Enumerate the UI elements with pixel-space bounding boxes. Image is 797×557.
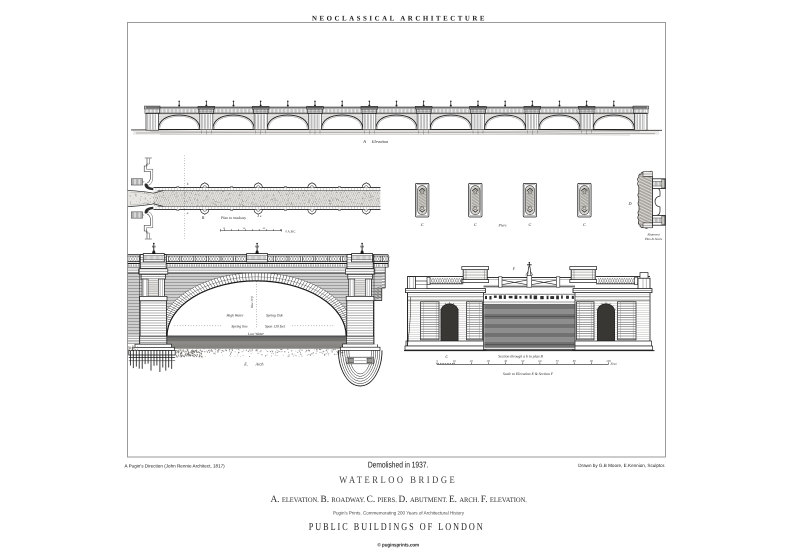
svg-text:F: F <box>512 266 516 271</box>
svg-text:C: C <box>421 222 424 227</box>
svg-text:C: C <box>474 222 477 227</box>
svg-text:Spring line: Spring line <box>231 324 248 328</box>
svg-text:Plan & Stairs: Plan & Stairs <box>644 237 663 241</box>
svg-text:Scale to Elevation E & Section: Scale to Elevation E & Section F <box>503 372 554 376</box>
svg-text:Section through a b in plan B: Section through a b in plan B <box>498 355 543 359</box>
svg-text:90: 90 <box>590 359 594 363</box>
svg-text:40: 40 <box>504 359 508 363</box>
svg-text:© puginsprints.com: © puginsprints.com <box>378 542 420 548</box>
svg-text:Rise 30 ft: Rise 30 ft <box>250 296 254 309</box>
svg-text:E.: E. <box>243 361 248 366</box>
svg-text:Plan to roadway: Plan to roadway <box>220 216 246 220</box>
svg-text:NEOCLASSICAL ARCHITECTURE: NEOCLASSICAL ARCHITECTURE <box>312 14 487 22</box>
svg-text:A Pugin's Direction (John Renn: A Pugin's Direction (John Rennie Archite… <box>125 463 226 468</box>
svg-text:PUBLIC BUILDINGS OF LONDON: PUBLIC BUILDINGS OF LONDON <box>309 522 485 533</box>
svg-text:Drawn by G.B Moore, E.Kennion,: Drawn by G.B Moore, E.Kennion, Sculptor. <box>578 463 665 468</box>
svg-text:30: 30 <box>487 359 491 363</box>
svg-text:Arch: Arch <box>255 361 264 366</box>
svg-text:C: C <box>529 222 532 227</box>
svg-text:Pugin's Prints. Commemorating: Pugin's Prints. Commemorating 200 Years … <box>333 511 465 516</box>
svg-text:Feet: Feet <box>609 362 617 366</box>
svg-text:50: 50 <box>521 359 525 363</box>
svg-text:A: A <box>362 139 366 144</box>
svg-text:80: 80 <box>573 359 577 363</box>
svg-text:60: 60 <box>538 359 542 363</box>
svg-text:C: C <box>583 222 586 227</box>
svg-text:Demolished in 1937.: Demolished in 1937. <box>368 460 429 470</box>
svg-text:◊ A.B.C: ◊ A.B.C <box>285 229 295 233</box>
svg-text:b a: b a <box>258 214 262 218</box>
svg-text:High Water: High Water <box>226 313 245 317</box>
svg-text:B: B <box>202 215 205 220</box>
svg-text:10: 10 <box>453 359 457 363</box>
svg-text:Span 120 feet: Span 120 feet <box>265 324 286 328</box>
svg-text:WATERLOO BRIDGE: WATERLOO BRIDGE <box>339 475 457 486</box>
svg-text:C: C <box>445 354 448 359</box>
svg-text:20: 20 <box>470 359 474 363</box>
svg-text:Spring Tide: Spring Tide <box>266 313 283 317</box>
svg-text:70: 70 <box>556 359 560 363</box>
svg-text:Piers: Piers <box>497 224 507 228</box>
svg-text:Abutment: Abutment <box>646 233 659 237</box>
svg-text:Low Water: Low Water <box>247 332 265 336</box>
svg-text:D: D <box>627 201 631 206</box>
svg-text:Elevation: Elevation <box>371 139 388 144</box>
